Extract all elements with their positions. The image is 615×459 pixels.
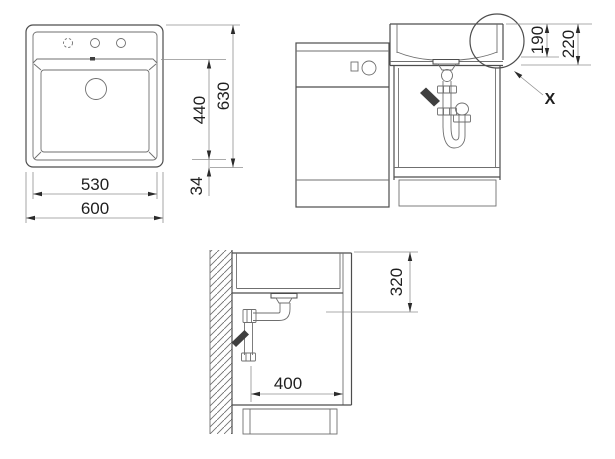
side-view: X 190 220	[296, 14, 592, 207]
arrowhead-right	[154, 216, 163, 220]
trap-inner	[451, 122, 459, 140]
overflow-mark	[90, 57, 95, 61]
shutoff-handle	[420, 88, 440, 107]
plinth-box	[243, 409, 337, 434]
standpipe-end-cap	[242, 353, 256, 361]
dim-label-total-height: 630	[214, 82, 233, 110]
arrowhead-left	[251, 392, 260, 396]
arrowhead-bottom	[207, 151, 211, 160]
appliance-body	[296, 43, 389, 207]
trap-outer	[443, 122, 465, 148]
arrowhead-bottom	[231, 159, 235, 168]
arrowhead-top	[207, 60, 211, 69]
elbow-outer	[253, 309, 290, 321]
dimension-34: 34	[187, 160, 211, 197]
bowl-bottom-left	[397, 52, 433, 60]
arrowhead-up	[207, 168, 211, 177]
dimension-400: 400	[251, 366, 343, 402]
technical-drawing-page: 530 600 440 630	[0, 0, 615, 459]
dim-label-outer-width: 600	[81, 199, 109, 218]
adjacent-appliance	[296, 43, 389, 207]
dimension-530: 530	[33, 172, 157, 199]
union-nut-mid	[438, 108, 457, 115]
outlet-elbow-cap	[456, 103, 469, 115]
union-nut-upper	[438, 86, 457, 93]
sink-installation-drawing: 530 600 440 630	[0, 0, 615, 459]
arrowhead-right	[334, 392, 343, 396]
bowl-corner-tl	[34, 64, 41, 70]
drain-neck	[276, 298, 292, 303]
sink-base-cabinet	[394, 66, 500, 207]
dim-label-base-offset: 34	[187, 177, 206, 196]
sink-inner-rim	[33, 32, 157, 160]
siphon-side	[420, 60, 471, 149]
section-view: 320 400	[210, 250, 418, 434]
siphon-section	[232, 294, 298, 362]
dim-label-clearance-depth: 400	[274, 374, 302, 393]
wall-outlet-fitting	[232, 330, 250, 347]
union-nut-outlet	[454, 115, 471, 122]
tap-hole-left-optional	[64, 39, 73, 48]
detail-label: X	[545, 91, 556, 108]
arrowhead-bottom	[408, 303, 412, 312]
wall-hatch	[210, 250, 232, 434]
arrowhead-left	[26, 216, 35, 220]
arrowhead-top	[408, 252, 412, 261]
cabinet-plinth	[399, 180, 496, 206]
tap-hole-center	[91, 39, 100, 48]
bowl-corner-tr	[149, 64, 156, 70]
arrowhead-right	[148, 192, 157, 196]
tap-hole-right	[117, 39, 126, 48]
dim-label-inner-width: 530	[81, 175, 109, 194]
bowl-corner-bl	[34, 152, 41, 159]
drain-flange	[433, 60, 459, 65]
drain-hole	[86, 79, 107, 100]
dim-label-outlet-height: 320	[387, 268, 406, 296]
appliance-display	[351, 62, 358, 71]
cabinet-base-section	[232, 405, 352, 434]
sink-outer-edge	[26, 25, 163, 167]
bowl-corner-br	[149, 152, 156, 159]
drain-flange	[271, 294, 297, 299]
elbow-inner	[253, 312, 280, 314]
arrowhead-top	[231, 25, 235, 34]
appliance-knob	[362, 61, 376, 75]
wall	[210, 250, 232, 434]
dim-label-total-depth: 220	[559, 30, 578, 58]
bowl-bottom-right	[459, 52, 497, 60]
dim-label-bowl-height: 440	[190, 96, 209, 124]
arrowhead-left	[33, 192, 42, 196]
dim-label-bowl-depth: 190	[528, 26, 547, 54]
bowl-floor-edge	[41, 70, 149, 152]
front-view: 530 600 440 630	[26, 25, 243, 223]
drain-ball-joint	[442, 70, 453, 82]
